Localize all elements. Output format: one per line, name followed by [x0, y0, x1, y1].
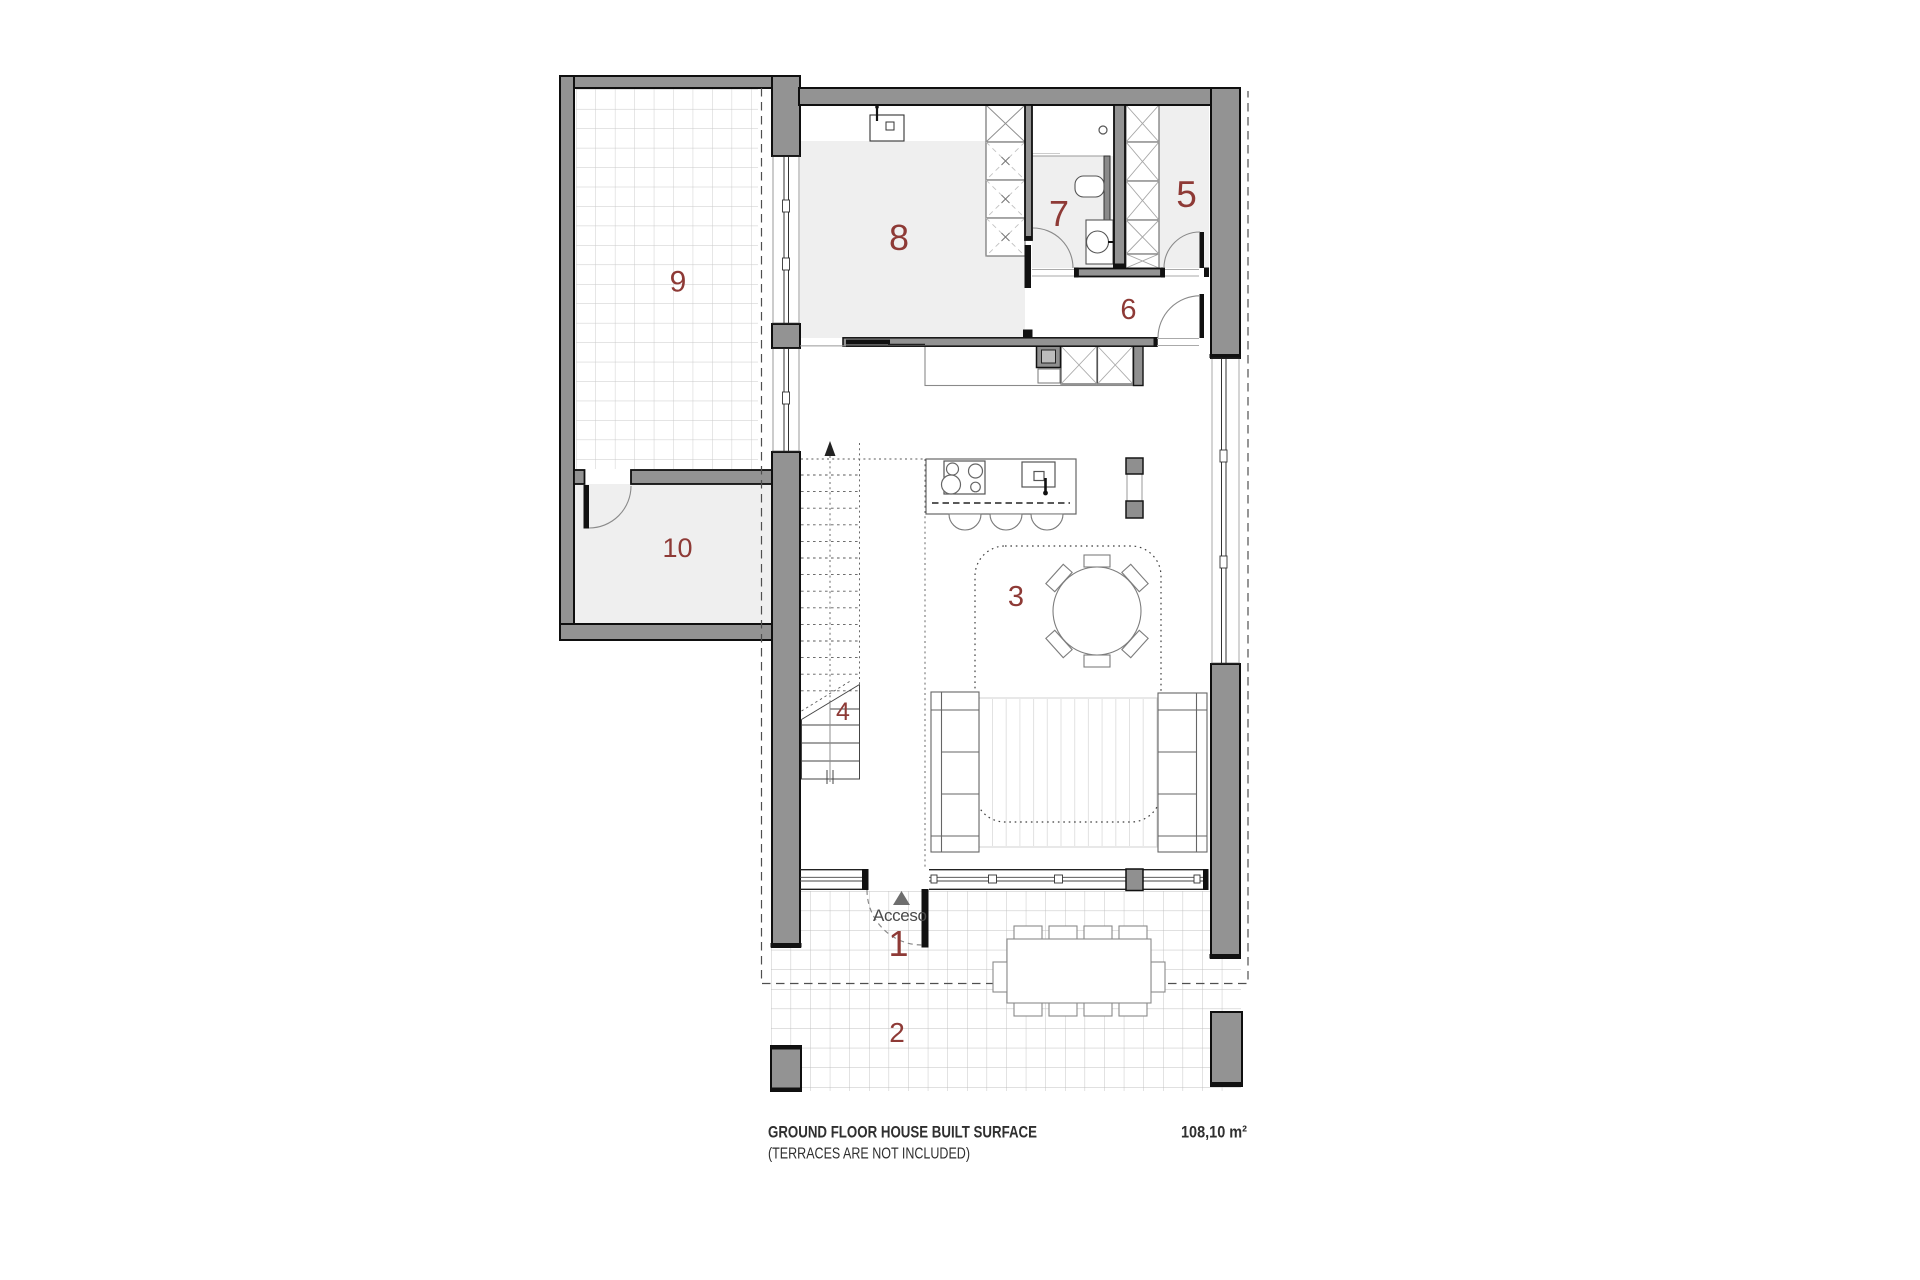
svg-text:GROUND FLOOR HOUSE BUILT SURFA: GROUND FLOOR HOUSE BUILT SURFACE: [768, 1124, 1037, 1142]
svg-text:2: 2: [889, 1017, 905, 1048]
svg-text:5: 5: [1176, 174, 1197, 215]
svg-text:1: 1: [888, 923, 908, 964]
svg-text:6: 6: [1120, 294, 1136, 326]
svg-text:10: 10: [662, 533, 692, 563]
svg-text:108,10 m²: 108,10 m²: [1181, 1124, 1247, 1142]
svg-text:(TERRACES ARE NOT INCLUDED): (TERRACES ARE NOT INCLUDED): [768, 1145, 970, 1162]
svg-text:3: 3: [1008, 581, 1024, 613]
svg-text:8: 8: [889, 217, 909, 258]
svg-text:9: 9: [670, 266, 687, 299]
svg-text:4: 4: [836, 698, 850, 726]
svg-text:7: 7: [1049, 193, 1069, 234]
